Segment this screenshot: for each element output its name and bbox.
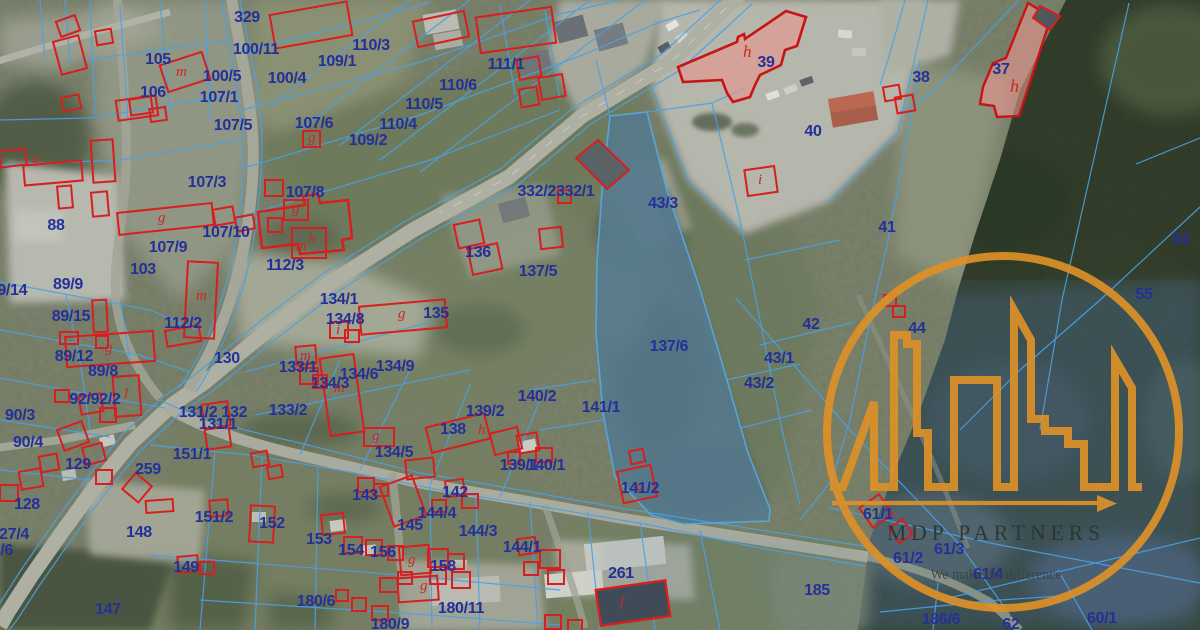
svg-text:141/1: 141/1 — [582, 399, 621, 416]
svg-text:m: m — [176, 64, 187, 80]
svg-text:m: m — [296, 238, 307, 254]
svg-text:130: 130 — [214, 350, 240, 367]
svg-text:43/1: 43/1 — [764, 350, 794, 367]
svg-text:106: 106 — [140, 84, 166, 101]
svg-text:g: g — [408, 552, 416, 568]
svg-text:259: 259 — [135, 461, 161, 478]
svg-text:43/3: 43/3 — [648, 195, 678, 212]
svg-text:145: 145 — [397, 517, 423, 534]
svg-text:62: 62 — [1002, 616, 1020, 630]
svg-text:137/5: 137/5 — [519, 263, 558, 280]
svg-text:89/8: 89/8 — [88, 363, 118, 380]
svg-text:110/6: 110/6 — [439, 77, 477, 94]
svg-text:131/1: 131/1 — [199, 416, 238, 433]
svg-text:112/3: 112/3 — [266, 257, 304, 274]
svg-text:g: g — [105, 340, 113, 356]
svg-text:185: 185 — [804, 582, 830, 599]
svg-text:MDP PARTNERS: MDP PARTNERS — [887, 520, 1105, 545]
svg-text:107/10: 107/10 — [202, 224, 250, 241]
svg-text:We make the difference: We make the difference — [931, 567, 1062, 583]
svg-text:141/2: 141/2 — [621, 480, 660, 497]
svg-text:43/2: 43/2 — [744, 375, 774, 392]
svg-text:332/2332/1: 332/2332/1 — [517, 183, 594, 200]
svg-text:l: l — [124, 386, 128, 402]
svg-text:g: g — [292, 201, 300, 217]
svg-text:88: 88 — [47, 217, 65, 234]
svg-text:90/4: 90/4 — [13, 434, 43, 451]
svg-text:103: 103 — [130, 261, 156, 278]
svg-text:139/2: 139/2 — [466, 403, 505, 420]
svg-text:g: g — [32, 151, 40, 167]
svg-text:41: 41 — [878, 219, 896, 236]
svg-text:100/5: 100/5 — [203, 68, 242, 85]
svg-text:87/6: 87/6 — [0, 542, 13, 559]
svg-text:38: 38 — [912, 69, 930, 86]
svg-text:110/3: 110/3 — [352, 37, 390, 54]
svg-text:151/1: 151/1 — [173, 446, 212, 463]
svg-text:140/1: 140/1 — [527, 457, 566, 474]
svg-text:55: 55 — [1135, 286, 1153, 303]
svg-text:151/2: 151/2 — [195, 509, 234, 526]
svg-text:156: 156 — [370, 544, 396, 561]
svg-text:109/1: 109/1 — [318, 53, 357, 70]
svg-text:134/9: 134/9 — [376, 358, 415, 375]
svg-text:144/3: 144/3 — [459, 523, 498, 540]
svg-text:107/5: 107/5 — [214, 117, 253, 134]
svg-text:60/1: 60/1 — [1087, 610, 1117, 627]
svg-text:180/6: 180/6 — [297, 593, 336, 610]
svg-text:149: 149 — [173, 559, 199, 576]
svg-text:152: 152 — [259, 515, 285, 532]
svg-text:137/6: 137/6 — [650, 338, 689, 355]
svg-text:128: 128 — [14, 496, 40, 513]
svg-text:107/9: 107/9 — [149, 239, 188, 256]
svg-text:158: 158 — [430, 558, 456, 575]
svg-text:107/1: 107/1 — [200, 89, 239, 106]
svg-text:89/9: 89/9 — [53, 276, 83, 293]
svg-text:107/3: 107/3 — [188, 174, 227, 191]
svg-text:107/6: 107/6 — [295, 115, 334, 132]
svg-text:107/8: 107/8 — [286, 184, 325, 201]
svg-text:147: 147 — [95, 601, 121, 618]
svg-text:109/2: 109/2 — [349, 132, 388, 149]
svg-text:92/92/2: 92/92/2 — [69, 391, 121, 408]
svg-text:186/6: 186/6 — [922, 611, 961, 628]
svg-text:90/3: 90/3 — [5, 407, 35, 424]
svg-text:143: 143 — [352, 487, 378, 504]
svg-text:g: g — [158, 210, 166, 226]
svg-text:89/15: 89/15 — [52, 308, 91, 325]
svg-text:37: 37 — [992, 61, 1010, 78]
svg-text:89/14: 89/14 — [0, 282, 28, 299]
svg-text:138: 138 — [440, 421, 466, 438]
svg-text:g: g — [420, 578, 428, 594]
svg-text:i: i — [758, 172, 762, 188]
svg-text:144/1: 144/1 — [503, 539, 542, 556]
svg-text:110/5: 110/5 — [405, 96, 443, 113]
svg-text:136: 136 — [465, 244, 491, 261]
svg-text:129: 129 — [65, 456, 91, 473]
svg-text:h: h — [308, 231, 316, 247]
svg-text:105: 105 — [145, 51, 171, 68]
svg-text:110/4: 110/4 — [379, 116, 417, 133]
svg-text:h: h — [743, 42, 752, 61]
svg-text:142: 142 — [442, 484, 468, 501]
svg-text:39: 39 — [757, 54, 775, 71]
svg-text:134/6: 134/6 — [340, 366, 379, 383]
svg-text:135: 135 — [423, 305, 449, 322]
svg-text:g: g — [308, 130, 316, 146]
svg-text:m: m — [196, 288, 207, 304]
svg-text:44: 44 — [908, 320, 926, 337]
svg-text:180/11: 180/11 — [438, 600, 485, 617]
svg-text:134/5: 134/5 — [375, 444, 414, 461]
svg-text:54: 54 — [1172, 231, 1190, 248]
svg-text:154: 154 — [338, 542, 364, 559]
svg-text:134/8: 134/8 — [326, 311, 365, 328]
svg-text:329: 329 — [234, 9, 260, 26]
svg-text:180/9: 180/9 — [371, 616, 410, 630]
svg-text:g: g — [398, 306, 406, 322]
svg-text:133/2: 133/2 — [269, 402, 308, 419]
svg-text:h: h — [478, 422, 486, 438]
svg-text:42: 42 — [802, 316, 820, 333]
svg-text:261: 261 — [608, 565, 634, 582]
svg-text:27/4: 27/4 — [0, 526, 29, 543]
svg-text:133/1: 133/1 — [279, 359, 318, 376]
svg-text:61/2: 61/2 — [893, 550, 923, 567]
svg-text:134/1: 134/1 — [320, 291, 359, 308]
svg-text:144/4: 144/4 — [418, 505, 457, 522]
svg-text:153: 153 — [306, 531, 332, 548]
svg-text:40: 40 — [804, 123, 822, 140]
svg-text:148: 148 — [126, 524, 152, 541]
svg-text:100/4: 100/4 — [268, 70, 307, 87]
svg-text:100/11: 100/11 — [233, 41, 280, 58]
svg-text:g: g — [372, 428, 380, 444]
svg-text:112/2: 112/2 — [164, 315, 202, 332]
svg-text:111/1: 111/1 — [488, 56, 525, 73]
svg-text:140/2: 140/2 — [518, 388, 557, 405]
svg-text:h: h — [1010, 76, 1019, 96]
